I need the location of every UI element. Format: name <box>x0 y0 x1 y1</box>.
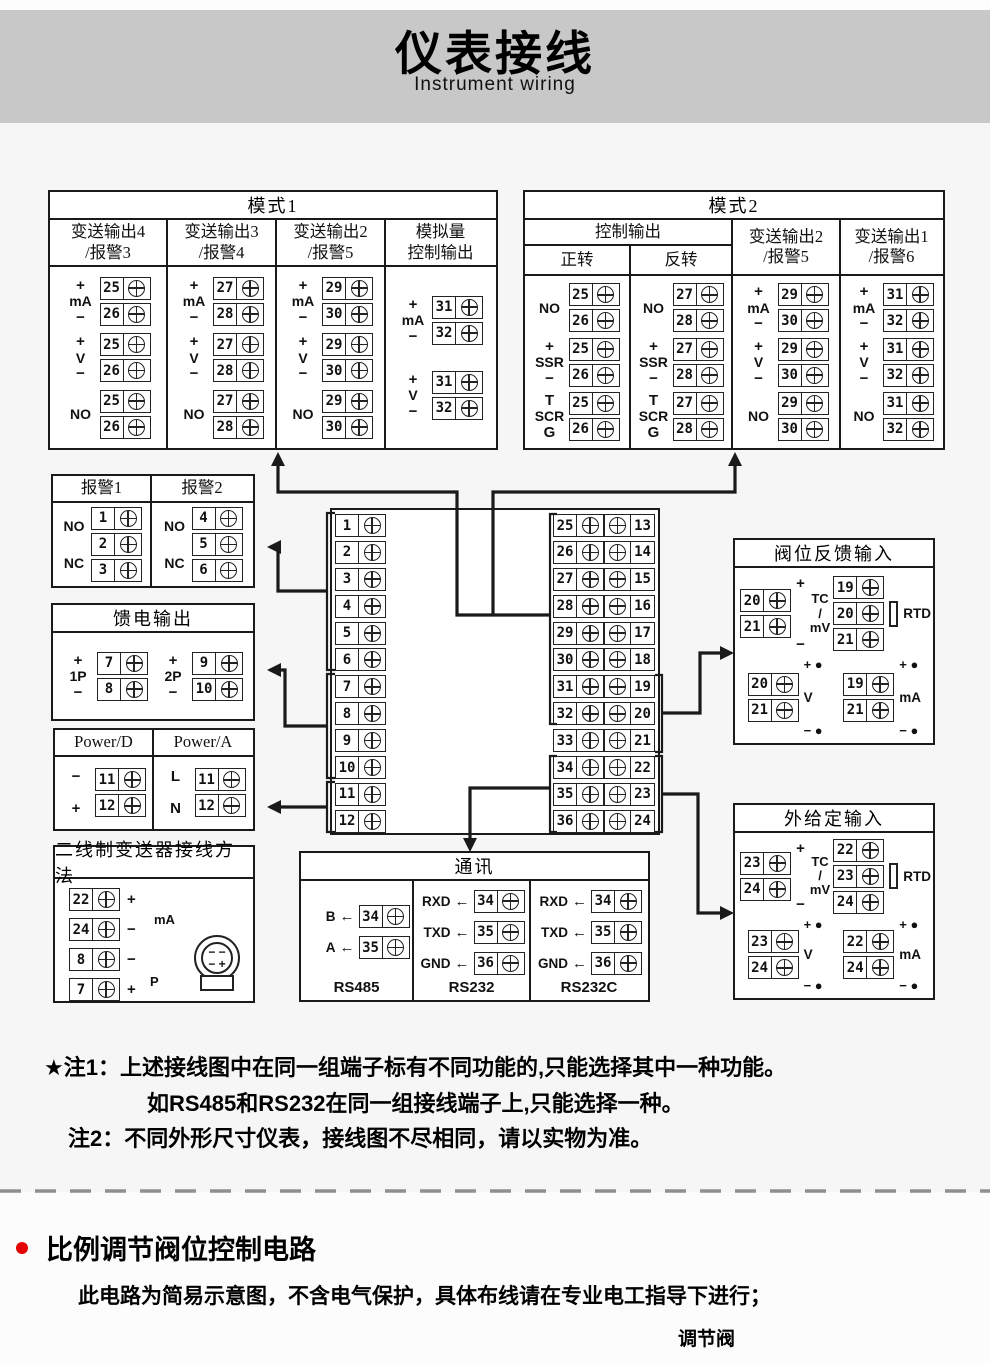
wiring-group-mA: +mA−3132 <box>849 283 934 332</box>
comm-section-RS485: B←34A←35 RS485 <box>301 881 414 1000</box>
screw-terminal-icon <box>359 622 386 645</box>
terminal-22: 22 <box>843 930 894 953</box>
terminal-30: 30 <box>778 364 829 387</box>
terminal-number: 35 <box>359 936 383 959</box>
column-header: 报警2 <box>152 476 252 501</box>
terminal-21: 21 <box>843 699 894 722</box>
screw-terminal-icon <box>857 628 884 651</box>
terminal-30: 30 <box>322 359 373 382</box>
terminal-31: 31 <box>883 283 934 306</box>
screw-terminal-icon <box>346 333 373 356</box>
screw-terminal-icon <box>802 392 829 415</box>
strip-terminal-36-24: 3624 <box>553 810 655 833</box>
column-header: 变送输出3/报警4 <box>168 220 277 265</box>
screw-terminal-icon <box>577 595 604 618</box>
terminal-25: 25 <box>100 390 151 413</box>
screw-terminal-icon <box>604 514 631 537</box>
terminal-number: 8 <box>69 948 93 971</box>
screw-terminal-icon <box>216 678 243 701</box>
terminal-30: 30 <box>322 303 373 326</box>
strip-terminal-28-16: 2816 <box>553 595 655 618</box>
wiring-group-mA: +mA−3132 <box>398 296 483 345</box>
panel-external-setpoint-input: 外给定输入2324+−TC/mV222324RTD2324+ ●V− ●2224… <box>733 803 935 1000</box>
strip-terminal-27-15: 2715 <box>553 568 655 591</box>
screw-terminal-icon <box>121 678 148 701</box>
terminal-number: 6 <box>192 559 216 582</box>
screw-terminal-icon <box>124 416 151 439</box>
screw-terminal-icon <box>697 418 724 441</box>
terminal-21: 21 <box>833 628 884 651</box>
screw-terminal-icon <box>764 589 791 612</box>
panel-title: 通讯 <box>301 853 648 881</box>
terminal-31: 31 <box>883 392 934 415</box>
screw-terminal-icon <box>359 595 386 618</box>
screw-terminal-icon <box>219 794 246 817</box>
terminal-number: 31 <box>883 338 907 361</box>
regulating-valve-label: 调节阀 <box>678 1324 735 1351</box>
strip-terminal-33-21: 3321 <box>553 729 655 752</box>
screw-terminal-icon <box>697 338 724 361</box>
rtd-resistor-icon <box>889 601 898 627</box>
note1-line1: ★注1：上述接线图中在同一组端子标有不同功能的,只能选择其中一种功能。 <box>44 1050 956 1086</box>
screw-terminal-icon <box>237 416 264 439</box>
terminal-29: 29 <box>322 390 373 413</box>
terminal-26: 26 <box>569 418 620 441</box>
screw-terminal-icon <box>604 810 631 833</box>
strip-terminal-6: 6 <box>335 648 386 671</box>
screw-terminal-icon <box>216 559 243 582</box>
terminal-number: 29 <box>322 277 346 300</box>
wiring-group-NO: NONC123 <box>61 507 142 582</box>
screw-terminal-icon <box>907 309 934 332</box>
terminal-number: 27 <box>673 338 697 361</box>
terminal-31: 31 <box>432 371 483 394</box>
screw-terminal-icon <box>772 673 799 696</box>
label-no: NO <box>64 519 85 533</box>
comm-standard-label: RS232C <box>561 977 618 998</box>
terminal-8: 8 <box>69 948 120 971</box>
screw-terminal-icon <box>577 622 604 645</box>
column-header: 变送输出4/报警3 <box>50 220 168 265</box>
wire-to-valve <box>662 653 722 713</box>
left-arrow-icon: ← <box>455 955 470 972</box>
terminal-26: 26 <box>569 364 620 387</box>
panel-power: Power/DPower/A−+1112LN1112 <box>53 728 255 831</box>
terminal-number: 26 <box>569 309 593 332</box>
screw-terminal-icon <box>867 673 894 696</box>
terminal-number: 28 <box>213 416 237 439</box>
terminal-number: 28 <box>673 364 697 387</box>
wiring-group-NO: NONC456 <box>162 507 243 582</box>
panel-title: 阀位反馈输入 <box>735 540 933 568</box>
wiring-group-SCR: TSCRG2526 <box>535 392 620 441</box>
screw-terminal-icon <box>577 541 604 564</box>
comm-standard-label: RS485 <box>334 977 380 998</box>
panel-title: 外给定输入 <box>735 805 933 833</box>
screw-terminal-icon <box>907 418 934 441</box>
wire-to-ext <box>662 794 722 913</box>
screw-terminal-icon <box>115 507 142 530</box>
terminal-number: 5 <box>192 533 216 556</box>
terminal-29: 29 <box>778 283 829 306</box>
terminal-19: 19 <box>833 576 884 599</box>
terminal-number: 7 <box>69 978 93 1001</box>
wiring-group-mA: +mA−2728 <box>179 277 264 326</box>
screw-terminal-icon <box>615 952 642 975</box>
label-p: P <box>150 974 159 989</box>
terminal-4: 4 <box>192 507 243 530</box>
terminal-8: 8 <box>97 678 148 701</box>
panel-mode1: 模式1变送输出4/报警3变送输出3/报警4变送输出2/报警5模拟量控制输出+mA… <box>48 190 498 450</box>
screw-terminal-icon <box>772 699 799 722</box>
terminal-number: 35 <box>474 921 498 944</box>
left-arrow-icon: ← <box>572 924 587 941</box>
screw-terminal-icon <box>802 283 829 306</box>
strip-terminal-32-20: 3220 <box>553 702 655 725</box>
terminal-number: 9 <box>192 652 216 675</box>
terminal-20: 20 <box>833 602 884 625</box>
page-title: 仪表接线 <box>0 28 990 80</box>
terminal-number: 29 <box>778 283 802 306</box>
terminal-35: 35 <box>591 921 642 944</box>
terminal-number: 22 <box>69 888 93 911</box>
terminal-31: 31 <box>883 338 934 361</box>
terminal-number: 34 <box>474 890 498 913</box>
wire-to-feed <box>270 670 327 726</box>
terminal-36: 36 <box>591 952 642 975</box>
screw-terminal-icon <box>93 918 120 941</box>
terminal-31: 31 <box>432 296 483 319</box>
screw-terminal-icon <box>456 322 483 345</box>
terminal-number: 11 <box>195 768 219 791</box>
terminal-29: 29 <box>778 392 829 415</box>
screw-terminal-icon <box>359 514 386 537</box>
column-header: 报警1 <box>53 476 152 501</box>
terminal-number: 30 <box>322 359 346 382</box>
column-header: Power/D <box>55 730 154 755</box>
wiring-group-NO: NO2728 <box>179 390 264 439</box>
terminal-number: 26 <box>100 303 124 326</box>
screw-terminal-icon <box>907 364 934 387</box>
screw-terminal-icon <box>867 956 894 979</box>
screw-terminal-icon <box>346 390 373 413</box>
screw-terminal-icon <box>697 392 724 415</box>
screw-terminal-icon <box>383 905 410 928</box>
wiring-group-mA: +mA−2930 <box>288 277 373 326</box>
wiring-group-NO: NO2526 <box>535 283 620 332</box>
terminal-25: 25 <box>569 283 620 306</box>
terminal-27: 27 <box>213 333 264 356</box>
column-header: Power/A <box>154 730 252 755</box>
wiring-group-V: +V−2526 <box>66 333 151 382</box>
column-header: 变送输出2/报警5 <box>733 220 841 274</box>
screw-terminal-icon <box>604 756 631 779</box>
screw-terminal-icon <box>577 702 604 725</box>
screw-terminal-icon <box>604 595 631 618</box>
terminal-23: 23 <box>748 930 799 953</box>
column-header: 变送输出1/报警6 <box>841 220 942 274</box>
screw-terminal-icon <box>867 699 894 722</box>
screw-terminal-icon <box>498 890 525 913</box>
screw-terminal-icon <box>456 397 483 420</box>
screw-terminal-icon <box>219 768 246 791</box>
note1-label: ★注1： <box>44 1055 120 1080</box>
terminal-number: 24 <box>748 956 772 979</box>
terminal-number: 35 <box>591 921 615 944</box>
arrow-up-mode1 <box>271 452 285 466</box>
terminal-27: 27 <box>673 283 724 306</box>
terminal-27: 27 <box>673 392 724 415</box>
screw-terminal-icon <box>615 890 642 913</box>
terminal-24: 24 <box>843 956 894 979</box>
screw-terminal-icon <box>237 303 264 326</box>
terminal-10: 10 <box>192 678 243 701</box>
terminal-number: 30 <box>322 303 346 326</box>
panel-mode2: 模式2 控制输出 正转 反转 变送输出2/报警5 变送输出1/报警6NO2526… <box>523 190 945 450</box>
terminal-number: 32 <box>883 418 907 441</box>
arrow-left-feed <box>267 663 281 677</box>
screw-terminal-icon <box>802 338 829 361</box>
terminal-number: 21 <box>833 628 857 651</box>
screw-terminal-icon <box>498 921 525 944</box>
terminal-23: 23 <box>740 852 791 875</box>
terminal-35: 35 <box>474 921 525 944</box>
screw-terminal-icon <box>359 541 386 564</box>
panel-alarm: 报警1报警2NONC123NONC456 <box>51 474 255 588</box>
terminal-number: 2 <box>91 533 115 556</box>
strip-terminal-11: 11 <box>335 783 386 806</box>
terminal-28: 28 <box>673 364 724 387</box>
panel-valve-feedback-input: 阀位反馈输入2021+−TC/mV192021RTD2021+ ●V− ●192… <box>733 538 935 745</box>
terminal-number: 20 <box>748 673 772 696</box>
wiring-group-NO: NO3132 <box>849 392 934 441</box>
screw-terminal-icon <box>346 416 373 439</box>
screw-terminal-icon <box>697 309 724 332</box>
terminal-27: 27 <box>213 390 264 413</box>
terminal-26: 26 <box>569 309 620 332</box>
terminal-number: 22 <box>833 839 857 862</box>
wiring-group-NO: NO2526 <box>66 390 151 439</box>
left-arrow-icon: ← <box>455 893 470 910</box>
screw-terminal-icon <box>237 277 264 300</box>
terminal-number: 25 <box>100 277 124 300</box>
terminal-25: 25 <box>569 338 620 361</box>
terminal-26: 26 <box>100 416 151 439</box>
screw-terminal-icon <box>593 309 620 332</box>
terminal-number: 32 <box>432 322 456 345</box>
terminal-number: 12 <box>195 794 219 817</box>
screw-terminal-icon <box>93 888 120 911</box>
terminal-number: 31 <box>883 392 907 415</box>
terminal-28: 28 <box>673 309 724 332</box>
column-header: 正转 <box>525 246 631 274</box>
screw-terminal-icon <box>346 359 373 382</box>
arrow-up-mode2 <box>728 452 742 466</box>
column-header: 模拟量控制输出 <box>386 220 495 265</box>
screw-terminal-icon <box>764 852 791 875</box>
terminal-29: 29 <box>778 338 829 361</box>
terminal-number: 31 <box>432 371 456 394</box>
terminal-number: 36 <box>591 952 615 975</box>
strip-terminal-34-22: 3422 <box>553 756 655 779</box>
screw-terminal-icon <box>383 936 410 959</box>
wiring-group-1P: +1P−78 <box>63 652 148 701</box>
terminal-number: 21 <box>748 699 772 722</box>
top-margin <box>0 0 990 10</box>
screw-terminal-icon <box>216 507 243 530</box>
screw-terminal-icon <box>237 359 264 382</box>
screw-terminal-icon <box>857 602 884 625</box>
arrow-right-valve <box>720 646 734 660</box>
terminal-21: 21 <box>748 699 799 722</box>
terminal-22: 22 <box>69 888 120 911</box>
screw-terminal-icon <box>907 283 934 306</box>
panel-two-wire-transmitter: 二线制变送器接线方法22+24−8−7+mAP− −− + <box>53 845 255 1003</box>
terminal-number: 24 <box>843 956 867 979</box>
wiring-group-L: LN1112 <box>161 768 246 817</box>
panel-communication: 通讯 B←34A←35 RS485 RXD←34TXD←35GND←36 RS2… <box>299 851 650 1002</box>
terminal-32: 32 <box>432 322 483 345</box>
terminal-number: 28 <box>213 359 237 382</box>
screw-terminal-icon <box>772 956 799 979</box>
screw-terminal-icon <box>697 364 724 387</box>
screw-terminal-icon <box>867 930 894 953</box>
terminal-30: 30 <box>322 416 373 439</box>
panel-title: 馈电输出 <box>53 605 253 633</box>
wiring-group-SSR: +SSR−2728 <box>639 338 724 387</box>
panel-title: 模式1 <box>50 192 496 220</box>
terminal-6: 6 <box>192 559 243 582</box>
terminal-19: 19 <box>843 673 894 696</box>
screw-terminal-icon <box>604 648 631 671</box>
terminal-number: 10 <box>192 678 216 701</box>
screw-terminal-icon <box>216 652 243 675</box>
wiring-group-V: +V−3132 <box>398 371 483 420</box>
terminal-number: 25 <box>100 390 124 413</box>
left-arrow-icon: ← <box>572 893 587 910</box>
screw-terminal-icon <box>615 921 642 944</box>
red-bullet-icon <box>16 1242 28 1254</box>
screw-terminal-icon <box>604 622 631 645</box>
bottom-section-background <box>0 1192 990 1363</box>
wiring-group-mA: +mA−2526 <box>66 277 151 326</box>
screw-terminal-icon <box>93 948 120 971</box>
label-no: NO <box>164 519 185 533</box>
screw-terminal-icon <box>359 568 386 591</box>
terminal-35: 35 <box>359 936 410 959</box>
strip-terminal-4: 4 <box>335 595 386 618</box>
screw-terminal-icon <box>359 783 386 806</box>
terminal-number: 32 <box>883 309 907 332</box>
strip-terminal-8: 8 <box>335 702 386 725</box>
strip-terminal-26-14: 2614 <box>553 541 655 564</box>
terminal-number: 1 <box>91 507 115 530</box>
screw-terminal-icon <box>577 675 604 698</box>
screw-terminal-icon <box>119 768 146 791</box>
terminal-number: 31 <box>432 296 456 319</box>
terminal-number: 25 <box>569 338 593 361</box>
wiring-group-SCR: TSCRG2728 <box>639 392 724 441</box>
strip-terminal-35-23: 3523 <box>553 783 655 806</box>
terminal-number: 24 <box>740 878 764 901</box>
terminal-28: 28 <box>213 416 264 439</box>
screw-terminal-icon <box>124 303 151 326</box>
strip-terminal-29-17: 2917 <box>553 622 655 645</box>
screw-terminal-icon <box>857 865 884 888</box>
strip-terminal-25-13: 2513 <box>553 514 655 537</box>
terminal-number: 30 <box>778 309 802 332</box>
screw-terminal-icon <box>577 810 604 833</box>
terminal-number: 32 <box>883 364 907 387</box>
column-header: 反转 <box>631 246 733 274</box>
screw-terminal-icon <box>907 338 934 361</box>
strip-terminal-5: 5 <box>335 622 386 645</box>
screw-terminal-icon <box>697 283 724 306</box>
terminal-28: 28 <box>213 303 264 326</box>
label-nc: NC <box>164 556 184 570</box>
screw-terminal-icon <box>802 364 829 387</box>
screw-terminal-icon <box>764 615 791 638</box>
terminal-34: 34 <box>359 905 410 928</box>
terminal-number: 23 <box>740 852 764 875</box>
terminal-11: 11 <box>195 768 246 791</box>
screw-terminal-icon <box>359 648 386 671</box>
panel-feed-output: 馈电输出+1P−78+2P−910 <box>51 603 255 721</box>
transmitter-icon: − −− + <box>194 935 240 981</box>
left-arrow-icon: ← <box>340 939 355 956</box>
terminal-32: 32 <box>883 418 934 441</box>
terminal-number: 29 <box>322 390 346 413</box>
terminal-1: 1 <box>91 507 142 530</box>
terminal-number: 30 <box>322 416 346 439</box>
screw-terminal-icon <box>346 303 373 326</box>
terminal-number: 11 <box>95 768 119 791</box>
wiring-group-V: +V−2728 <box>179 333 264 382</box>
terminal-number: 25 <box>100 333 124 356</box>
wire-to-alarm <box>270 547 327 591</box>
terminal-number: 32 <box>432 397 456 420</box>
screw-terminal-icon <box>857 891 884 914</box>
terminal-number: 20 <box>740 589 764 612</box>
screw-terminal-icon <box>124 333 151 356</box>
label-ma: mA <box>154 912 175 927</box>
wiring-group-V: +V−3132 <box>849 338 934 387</box>
terminal-11: 11 <box>95 768 146 791</box>
terminal-23: 23 <box>833 865 884 888</box>
terminal-25: 25 <box>569 392 620 415</box>
terminal-number: 27 <box>213 390 237 413</box>
terminal-24: 24 <box>748 956 799 979</box>
terminal-30: 30 <box>778 418 829 441</box>
terminal-12: 12 <box>195 794 246 817</box>
terminal-number: 28 <box>673 309 697 332</box>
screw-terminal-icon <box>604 541 631 564</box>
terminal-number: 31 <box>883 283 907 306</box>
left-arrow-icon: ← <box>340 908 355 925</box>
terminal-30: 30 <box>778 309 829 332</box>
wiring-group-−: −+1112 <box>61 768 146 817</box>
panel-title: 模式2 <box>525 192 943 220</box>
terminal-number: 7 <box>97 652 121 675</box>
screw-terminal-icon <box>593 364 620 387</box>
wiring-group-2P: +2P−910 <box>158 652 243 701</box>
terminal-27: 27 <box>213 277 264 300</box>
terminal-number: 26 <box>100 359 124 382</box>
terminal-number: 27 <box>213 277 237 300</box>
screw-terminal-icon <box>237 333 264 356</box>
screw-terminal-icon <box>359 675 386 698</box>
terminal-number: 28 <box>673 418 697 441</box>
